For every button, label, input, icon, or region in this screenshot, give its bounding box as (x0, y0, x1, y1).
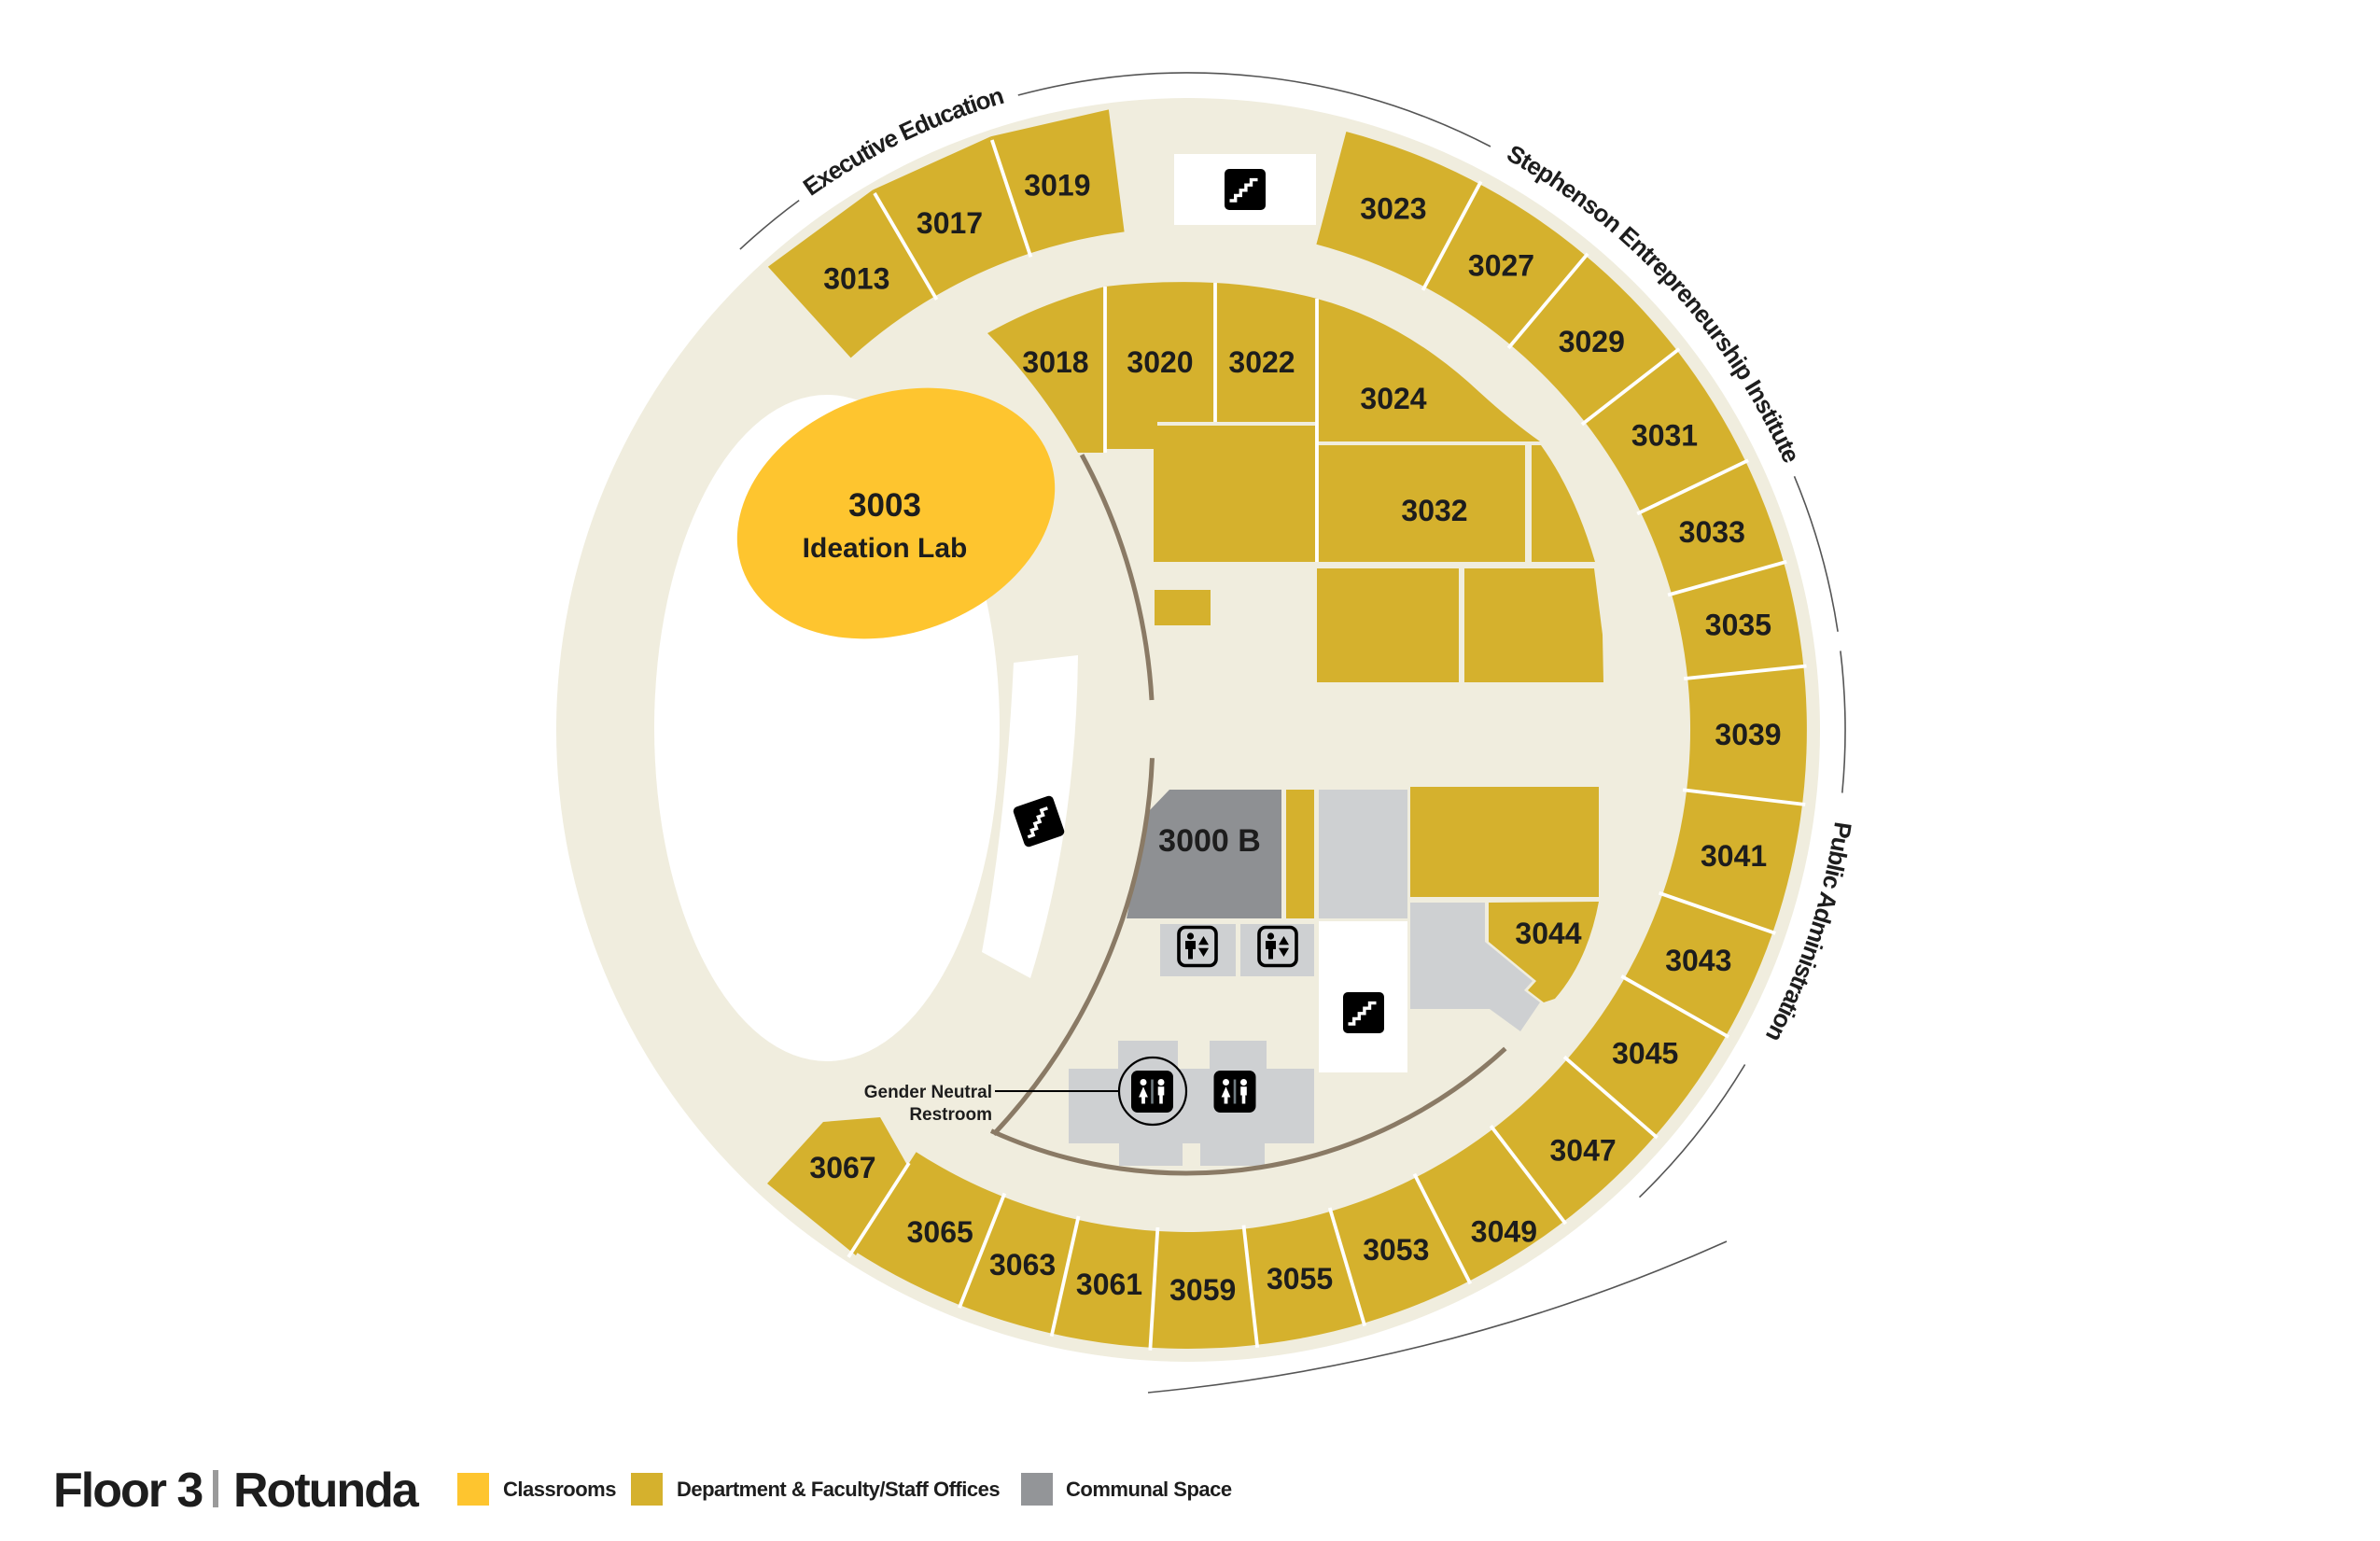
svg-text:3024: 3024 (1360, 382, 1426, 415)
svg-text:3023: 3023 (1360, 192, 1426, 226)
svg-text:3003: 3003 (848, 487, 921, 524)
svg-text:3035: 3035 (1705, 609, 1771, 642)
svg-text:3055: 3055 (1267, 1262, 1333, 1296)
svg-text:3044: 3044 (1515, 917, 1581, 950)
svg-text:3045: 3045 (1612, 1037, 1678, 1071)
svg-text:3032: 3032 (1401, 494, 1467, 527)
svg-text:3059: 3059 (1169, 1273, 1236, 1307)
svg-text:3019: 3019 (1024, 169, 1090, 203)
svg-text:3027: 3027 (1468, 249, 1534, 283)
svg-text:3020: 3020 (1127, 345, 1193, 379)
svg-text:3065: 3065 (907, 1215, 973, 1249)
svg-text:3039: 3039 (1715, 718, 1781, 751)
svg-text:Gender Neutral: Gender Neutral (864, 1083, 992, 1102)
svg-text:3031: 3031 (1631, 419, 1698, 453)
svg-text:Department & Faculty/Staff Off: Department & Faculty/Staff Offices (677, 1478, 1000, 1501)
svg-text:3033: 3033 (1679, 515, 1745, 549)
svg-text:3013: 3013 (823, 261, 889, 295)
svg-text:3067: 3067 (809, 1151, 875, 1184)
svg-text:3053: 3053 (1363, 1233, 1429, 1267)
svg-text:Classrooms: Classrooms (503, 1478, 616, 1501)
svg-text:3047: 3047 (1550, 1134, 1617, 1168)
svg-text:3022: 3022 (1228, 345, 1295, 379)
svg-text:3029: 3029 (1559, 325, 1625, 358)
svg-text:3017: 3017 (917, 206, 983, 240)
svg-text:3000 B: 3000 B (1158, 823, 1261, 859)
svg-text:Rotunda: Rotunda (233, 1464, 420, 1518)
svg-text:Floor 3: Floor 3 (53, 1464, 203, 1518)
svg-text:Ideation Lab: Ideation Lab (803, 533, 968, 564)
svg-text:Communal Space: Communal Space (1066, 1478, 1232, 1501)
svg-text:3063: 3063 (989, 1248, 1056, 1282)
svg-text:Restroom: Restroom (909, 1105, 992, 1125)
svg-text:3018: 3018 (1022, 345, 1088, 379)
svg-text:3061: 3061 (1076, 1268, 1142, 1301)
svg-text:3043: 3043 (1665, 944, 1731, 977)
svg-text:3049: 3049 (1471, 1214, 1537, 1248)
svg-text:3041: 3041 (1701, 839, 1767, 873)
